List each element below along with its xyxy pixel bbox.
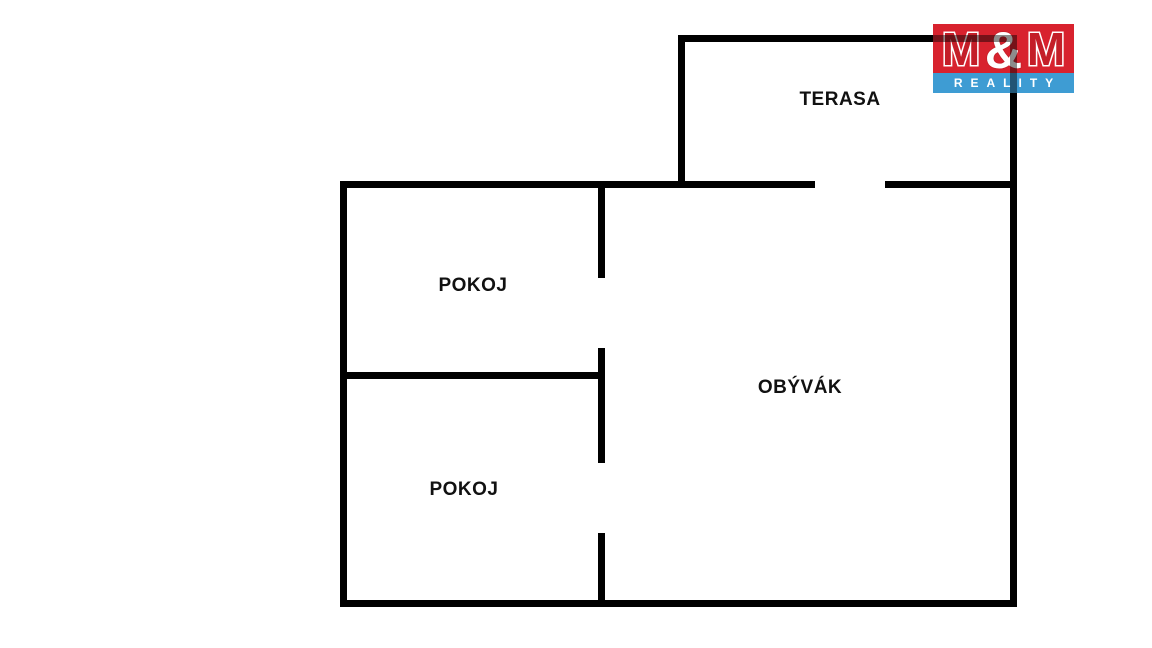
wall-middle-vertical-upper [598,181,605,278]
wall-between-pokoj-rooms [340,372,605,379]
wall-middle-vertical-middle [598,348,605,463]
svg-text:M: M [942,24,980,73]
mm-reality-logo-blue-bar: REALITY [933,73,1074,93]
wall-top-left-segment [340,181,815,188]
room-label-pokoj-top: POKOJ [438,275,507,297]
room-label-pokoj-bottom: POKOJ [429,479,498,501]
wall-terrace-left [678,35,685,188]
room-label-terasa: TERASA [799,89,880,111]
wall-left [340,181,347,607]
door-opening-terrace [815,181,885,188]
floor-plan: TERASA POKOJ OBÝVÁK POKOJ M M & REALITY [0,0,1152,648]
mm-logo-monogram-icon: M M & [933,24,1074,73]
door-opening-pokoj-bottom [598,463,605,533]
wall-bottom [340,600,1017,607]
wall-middle-vertical-lower [598,533,605,607]
wall-right [1010,35,1017,607]
door-opening-pokoj-top [598,278,605,348]
wall-top-right-segment [885,181,1017,188]
mm-reality-logo-red-box: M M & [933,24,1074,73]
wall-showthrough-vertical [1010,42,1017,93]
svg-text:M: M [1027,24,1065,73]
wall-showthrough-horizontal [933,35,1017,42]
room-label-obyvak: OBÝVÁK [758,377,842,399]
mm-reality-logo-text: REALITY [954,76,1061,90]
